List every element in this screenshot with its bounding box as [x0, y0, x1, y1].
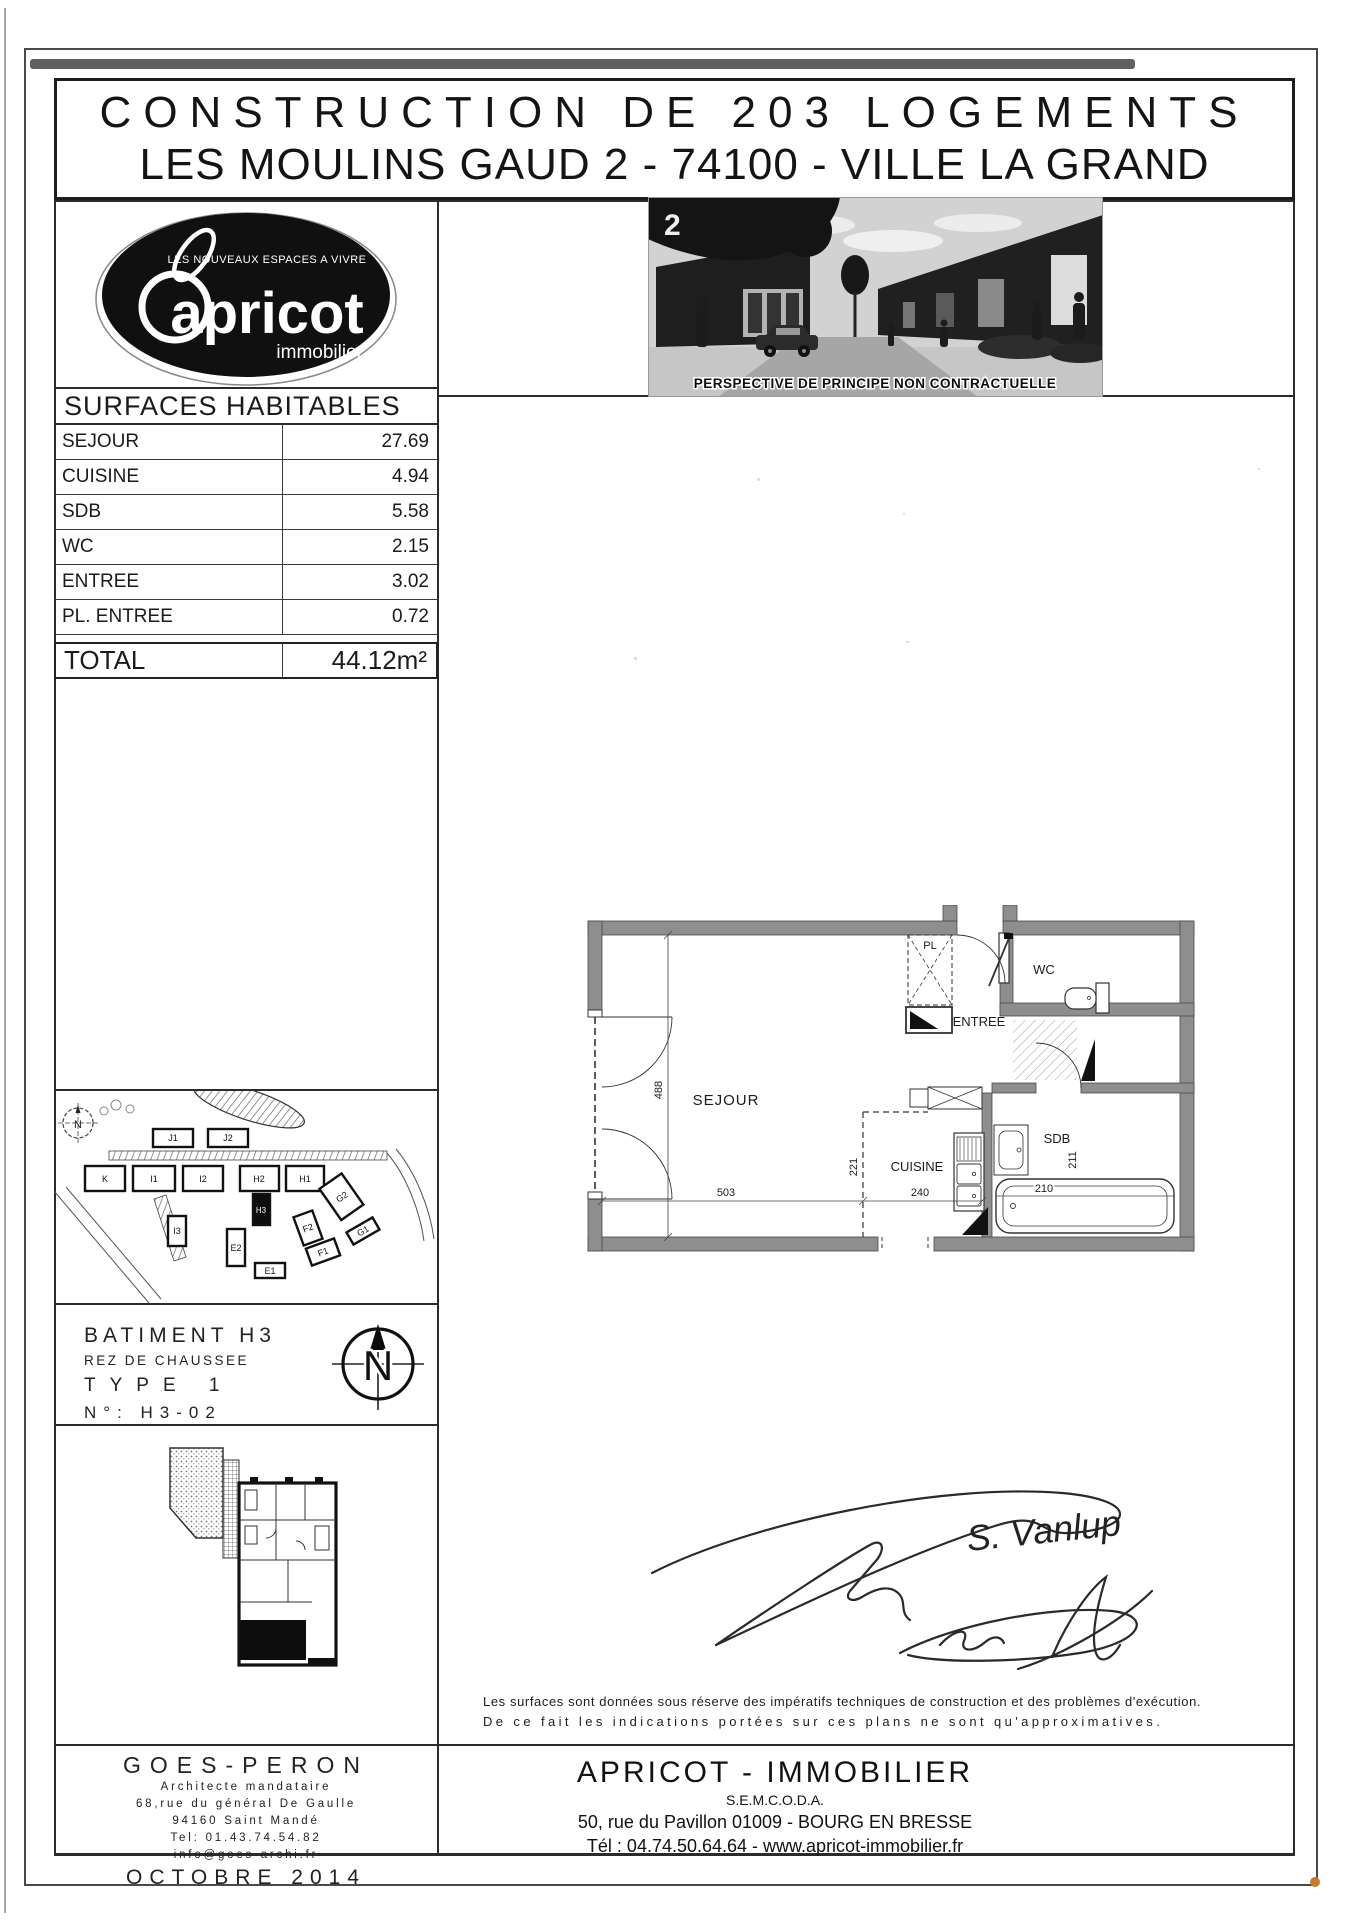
frame-right [1293, 78, 1295, 1855]
scan-dot-artifact [1310, 1877, 1320, 1887]
site-plan: N J1 [54, 1091, 438, 1303]
promoter-name: APRICOT - IMMOBILIER [455, 1756, 1095, 1790]
north-compass-icon: N [330, 1316, 426, 1412]
building-key-plan [100, 1430, 380, 1700]
room-area: 0.72 [283, 600, 438, 634]
frame-left [54, 78, 56, 1855]
svg-text:K: K [102, 1174, 108, 1184]
room-label: CUISINE [54, 460, 283, 494]
svg-text:H1: H1 [299, 1174, 311, 1184]
promoter-address: 50, rue du Pavillon 01009 - BOURG EN BRE… [455, 1812, 1095, 1833]
surfaces-header: SURFACES HABITABLES [54, 388, 438, 425]
svg-text:210: 210 [1035, 1183, 1053, 1195]
disclaimer-line1: Les surfaces sont données sous réserve d… [483, 1692, 1295, 1712]
room-label: PL. ENTREE [54, 600, 283, 634]
logo-subname: immobilier [276, 342, 363, 363]
svg-text:PL: PL [923, 940, 936, 952]
svg-text:H2: H2 [253, 1174, 265, 1184]
room-label: WC [54, 530, 283, 564]
svg-text:CUISINE: CUISINE [891, 1159, 944, 1174]
room-area: 3.02 [283, 565, 438, 599]
svg-text:SDB: SDB [1044, 1131, 1071, 1146]
signatures: S. Vanlup [600, 1405, 1220, 1695]
siteplan-cell-bottom [54, 1303, 438, 1305]
svg-text:ENTREE: ENTREE [953, 1014, 1006, 1029]
surface-row: SDB 5.58 [54, 495, 438, 530]
total-label: TOTAL [56, 644, 283, 677]
svg-text:J1: J1 [168, 1133, 178, 1143]
surfaces-table: SURFACES HABITABLES SEJOUR 27.69 CUISINE… [54, 388, 438, 635]
svg-text:221: 221 [848, 1158, 860, 1176]
tree [841, 255, 869, 295]
disclaimer-line2: De ce fait les indications portées sur c… [483, 1712, 1295, 1732]
svg-text:240: 240 [911, 1187, 929, 1199]
svg-text:503: 503 [717, 1187, 735, 1199]
plan-date: OCTOBRE 2014 [56, 1866, 436, 1890]
unit-building: BATIMENT H3 [84, 1324, 276, 1348]
unit-info-block: BATIMENT H3 REZ DE CHAUSSEE TYPE 1 N°: H… [84, 1324, 276, 1423]
scanned-floorplan-document: CONSTRUCTION DE 203 LOGEMENTS LES MOULIN… [0, 0, 1356, 1920]
surface-row: CUISINE 4.94 [54, 460, 438, 495]
room-label: ENTREE [54, 565, 283, 599]
perspective-caption: PERSPECTIVE DE PRINCIPE NON CONTRACTUELL… [694, 376, 1057, 391]
duct-shaft [1081, 1039, 1095, 1081]
scan-edge-line [4, 8, 6, 1913]
architect-block: GOES-PERON Architecte mandataire 68,rue … [56, 1752, 436, 1890]
photo-corner-number: 2 [664, 209, 681, 242]
architect-role: Architecte mandataire [56, 1779, 436, 1796]
svg-text:E2: E2 [230, 1243, 241, 1253]
svg-text:E1: E1 [264, 1266, 275, 1276]
title-line2: LES MOULINS GAUD 2 - 74100 - VILLE LA GR… [139, 140, 1209, 190]
svg-text:N: N [74, 1119, 82, 1131]
room-area: 27.69 [283, 425, 438, 459]
apricot-logo: LES NOUVEAUX ESPACES A VIVRE apricot imm… [95, 203, 397, 387]
unit-floor: REZ DE CHAUSSEE [84, 1353, 276, 1368]
room-area: 2.15 [283, 530, 438, 564]
promoter-tel: Tél : 04.74.50.64.64 - www.apricot-immob… [455, 1836, 1095, 1857]
title-block: CONSTRUCTION DE 203 LOGEMENTS LES MOULIN… [54, 78, 1295, 200]
surface-row: ENTREE 3.02 [54, 565, 438, 600]
unit-cell-bottom [54, 1424, 438, 1426]
architect-name: GOES-PERON [56, 1752, 436, 1779]
svg-text:488: 488 [653, 1081, 665, 1099]
architect-address2: 94160 Saint Mandé [56, 1813, 436, 1830]
room-label: SDB [54, 495, 283, 529]
svg-text:I3: I3 [173, 1226, 181, 1236]
surface-row: SEJOUR 27.69 [54, 425, 438, 460]
title-line1: CONSTRUCTION DE 203 LOGEMENTS [100, 88, 1250, 138]
architect-address1: 68,rue du général De Gaulle [56, 1796, 436, 1813]
svg-text:211: 211 [1067, 1151, 1079, 1169]
promoter-block: APRICOT - IMMOBILIER S.E.M.C.O.D.A. 50, … [455, 1756, 1095, 1857]
surface-row: WC 2.15 [54, 530, 438, 565]
logo-tagline: LES NOUVEAUX ESPACES A VIVRE [167, 254, 366, 266]
toilet-icon [1065, 983, 1109, 1013]
road-strip [109, 1151, 387, 1160]
siteplan-compass-icon: N [58, 1103, 98, 1143]
french-door [588, 1010, 672, 1199]
svg-text:I2: I2 [199, 1174, 207, 1184]
bathroom-fixtures [994, 1125, 1174, 1233]
surfaces-total-row: TOTAL 44.12m² [54, 642, 438, 679]
highlighted-building-label: H3 [256, 1206, 267, 1215]
room-area: 5.58 [283, 495, 438, 529]
tiled-floor [1013, 1020, 1077, 1080]
svg-text:I1: I1 [150, 1174, 158, 1184]
svg-text:WC: WC [1033, 962, 1055, 977]
unit-number: N°: H3-02 [84, 1403, 276, 1423]
svg-text:SEJOUR: SEJOUR [693, 1092, 760, 1109]
architect-tel: Tel: 01.43.74.54.82 [56, 1830, 436, 1847]
logo-name: apricot [170, 281, 363, 346]
unit-location-highlight [240, 1620, 306, 1660]
perspective-rendering: 2 PERSPECTIVE DE PRINCIPE NON CONTRACTUE… [648, 197, 1103, 397]
room-area: 4.94 [283, 460, 438, 494]
room-label: SEJOUR [54, 425, 283, 459]
architect-email: info@goes-archi.fr [56, 1847, 436, 1864]
surface-row: PL. ENTREE 0.72 [54, 600, 438, 635]
grating-strip [223, 1460, 239, 1558]
apartment-floor-plan: SEJOUR CUISINE SDB WC ENTREE PL 488 503 … [576, 905, 1206, 1255]
terrace-area [170, 1448, 223, 1538]
svg-text:J2: J2 [223, 1133, 233, 1143]
total-value: 44.12m² [283, 644, 436, 677]
promoter-org: S.E.M.C.O.D.A. [455, 1792, 1095, 1808]
disclaimer: Les surfaces sont données sous réserve d… [483, 1692, 1295, 1732]
signature-name: S. Vanlup [965, 1502, 1123, 1559]
footer-top [54, 1744, 1295, 1746]
unit-type: TYPE 1 [84, 1375, 276, 1397]
compass-letter: N [363, 1342, 393, 1389]
